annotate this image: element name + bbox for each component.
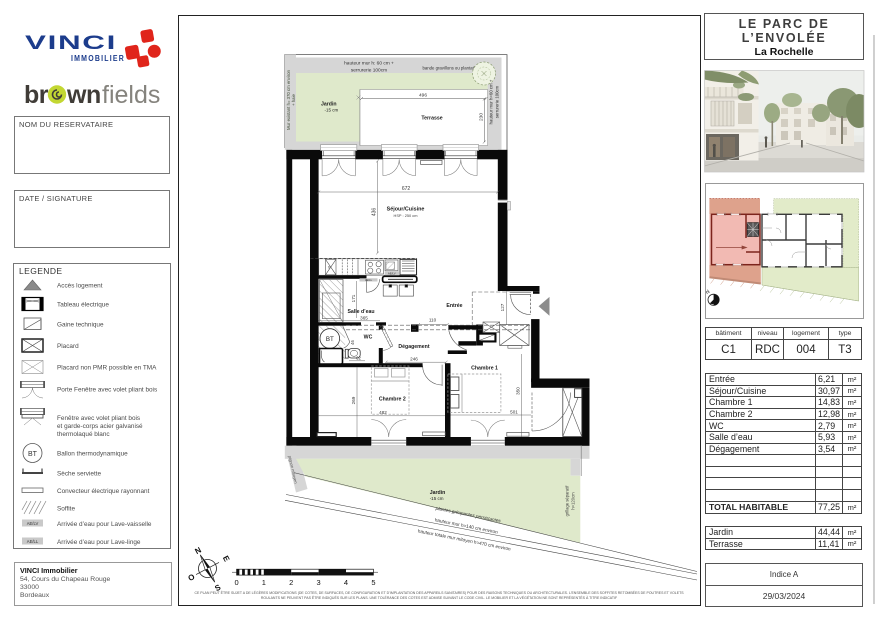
svg-text:et garde-corps acier galvanisé: et garde-corps acier galvanisé — [57, 423, 143, 430]
svg-text:Entrée: Entrée — [446, 303, 462, 309]
svg-text:501: 501 — [510, 410, 518, 415]
svg-text:269: 269 — [351, 396, 356, 404]
svg-text:Ballon thermodynamique: Ballon thermodynamique — [57, 451, 128, 458]
svg-text:N: N — [193, 545, 203, 556]
svg-text:171: 171 — [351, 294, 356, 302]
svg-text:Fenêtre avec volet pliant bois: Fenêtre avec volet pliant bois — [57, 415, 140, 422]
svg-text:Tableau électrique: Tableau électrique — [57, 302, 109, 309]
svg-text:AE/LV: AE/LV — [27, 521, 39, 526]
svg-text:1: 1 — [262, 578, 266, 587]
svg-text:127: 127 — [500, 303, 505, 311]
svg-text:365: 365 — [360, 315, 368, 320]
svg-text:Chambre 2: Chambre 2 — [379, 396, 406, 402]
svg-text:5: 5 — [371, 578, 375, 587]
svg-text:Arrivée d’eau pour Lave-linge: Arrivée d’eau pour Lave-linge — [57, 539, 141, 546]
svg-text:grillage séparatif: grillage séparatif — [565, 485, 570, 517]
svg-text:46: 46 — [350, 340, 355, 345]
svg-text:3: 3 — [317, 578, 321, 587]
svg-text:350: 350 — [516, 387, 521, 395]
svg-text:AE/LL: AE/LL — [365, 278, 373, 282]
svg-text:-15 cm: -15 cm — [430, 496, 444, 501]
svg-text:AE/LV: AE/LV — [388, 271, 396, 275]
svg-text:thermolaqué blanc: thermolaqué blanc — [57, 431, 110, 438]
svg-text:HSP : 250 cm: HSP : 250 cm — [394, 213, 418, 218]
svg-text:Arrivée d’eau pour Lave-vaisse: Arrivée d’eau pour Lave-vaisselle — [57, 521, 152, 528]
svg-text:246: 246 — [410, 357, 418, 362]
svg-text:BT: BT — [326, 336, 334, 343]
svg-text:wn: wn — [66, 81, 101, 109]
svg-text:h=120cm: h=120cm — [571, 492, 576, 510]
svg-text:IMMOBILIER: IMMOBILIER — [71, 54, 125, 63]
svg-text:LEGENDE: LEGENDE — [19, 266, 62, 276]
svg-text:Placard non PMR possible en TM: Placard non PMR possible en TMA — [57, 365, 157, 372]
svg-text:AE/LL: AE/LL — [27, 539, 39, 544]
svg-text:110: 110 — [429, 318, 437, 323]
svg-text:230: 230 — [478, 113, 484, 121]
svg-text:WC: WC — [364, 334, 373, 340]
svg-text:62: 62 — [356, 355, 361, 360]
svg-text:Accès logement: Accès logement — [57, 283, 103, 290]
svg-text:fields: fields — [102, 81, 160, 109]
svg-text:436: 436 — [372, 208, 378, 217]
svg-text:Porte Fenêtre avec volet plian: Porte Fenêtre avec volet pliant bois — [57, 387, 157, 394]
svg-text:+ haie: + haie — [291, 93, 296, 105]
svg-text:E: E — [221, 554, 232, 564]
svg-text:Gaine technique: Gaine technique — [57, 322, 104, 329]
svg-text:br: br — [24, 81, 49, 109]
svg-text:Soffite: Soffite — [57, 506, 75, 513]
svg-text:Convecteur électrique rayonnan: Convecteur électrique rayonnant — [57, 488, 150, 495]
svg-text:2: 2 — [289, 578, 293, 587]
svg-text:Chambre 1: Chambre 1 — [471, 365, 498, 371]
svg-text:Salle d’eau: Salle d’eau — [347, 309, 374, 315]
svg-text:bande gravillons ou plantation: bande gravillons ou plantation — [422, 66, 480, 71]
svg-text:Séjour/Cuisine: Séjour/Cuisine — [387, 207, 425, 213]
svg-text:hauteur mur h: 60 cm +: hauteur mur h: 60 cm + — [344, 61, 394, 67]
svg-text:Placard: Placard — [57, 343, 79, 350]
svg-text:hauteur mur h=60 cm +: hauteur mur h=60 cm + — [489, 79, 494, 124]
svg-text:4: 4 — [344, 578, 348, 587]
svg-text:Terrasse: Terrasse — [421, 116, 442, 122]
svg-text:serrurerie 100cm: serrurerie 100cm — [351, 68, 387, 74]
svg-text:Sèche serviette: Sèche serviette — [57, 471, 101, 478]
svg-text:496: 496 — [419, 93, 427, 99]
svg-text:VINCI: VINCI — [25, 33, 117, 54]
svg-text:BT: BT — [28, 451, 38, 458]
svg-text:Dégagement: Dégagement — [398, 344, 429, 350]
svg-text:-15 cm: -15 cm — [325, 108, 339, 113]
svg-text:0: 0 — [235, 578, 239, 587]
svg-text:S: S — [213, 582, 223, 593]
svg-text:serrurerie 100cm: serrurerie 100cm — [495, 85, 500, 118]
svg-text:O: O — [187, 572, 197, 583]
svg-text:482: 482 — [379, 410, 387, 415]
svg-text:672: 672 — [402, 186, 411, 192]
